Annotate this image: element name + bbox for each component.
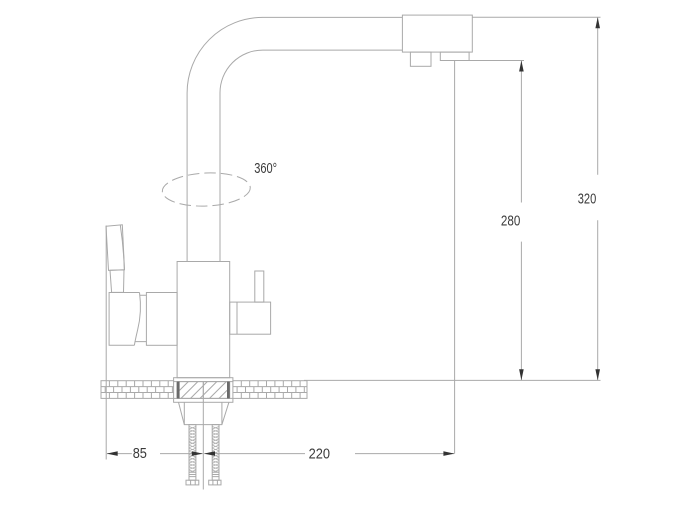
svg-text:280: 280 bbox=[501, 212, 520, 229]
svg-text:360°: 360° bbox=[254, 160, 277, 177]
svg-text:220: 220 bbox=[309, 446, 330, 463]
svg-text:320: 320 bbox=[578, 190, 597, 207]
svg-text:85: 85 bbox=[133, 445, 147, 462]
